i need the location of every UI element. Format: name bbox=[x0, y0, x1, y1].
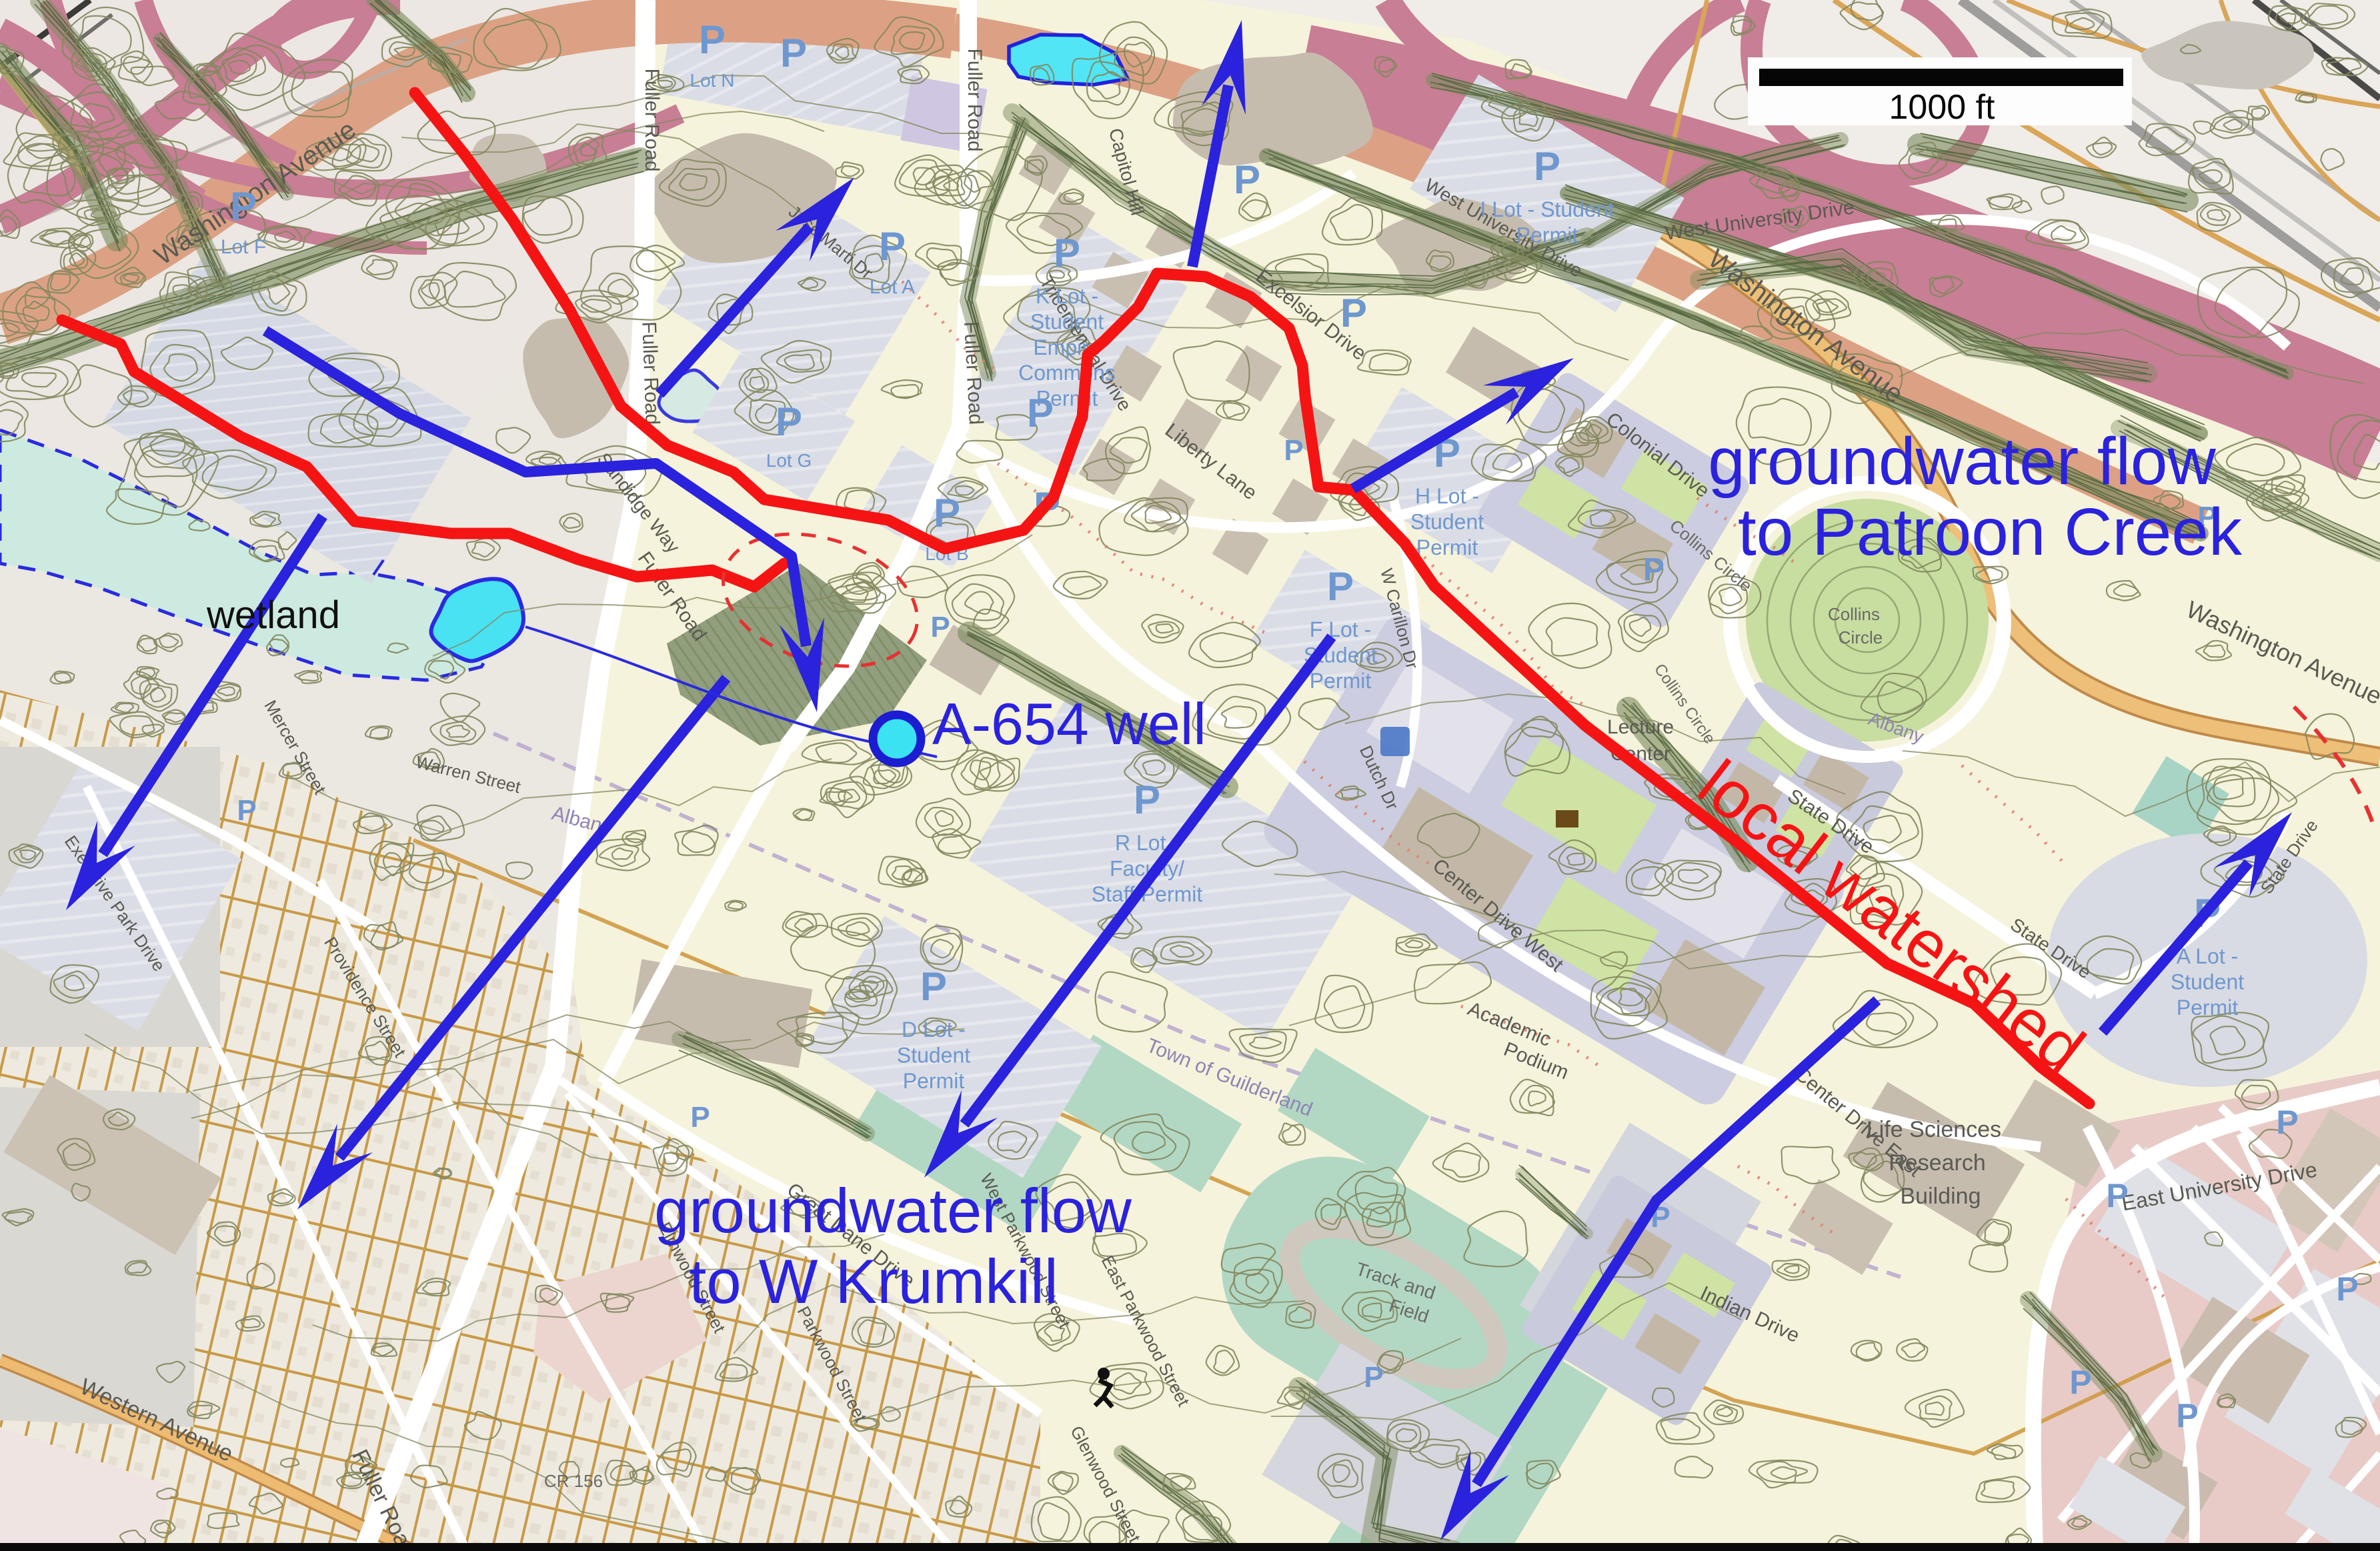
svg-text:P: P bbox=[780, 31, 807, 75]
svg-text:CR 156: CR 156 bbox=[544, 1471, 603, 1491]
svg-text:Student: Student bbox=[1030, 309, 1104, 333]
svg-text:Research: Research bbox=[1889, 1150, 1986, 1176]
svg-text:P: P bbox=[1643, 552, 1664, 587]
svg-text:1000 ft: 1000 ft bbox=[1889, 88, 1995, 127]
svg-text:Collins: Collins bbox=[1828, 604, 1880, 624]
svg-text:Fuller Road: Fuller Road bbox=[964, 48, 986, 151]
svg-text:Lecture: Lecture bbox=[1607, 716, 1674, 738]
svg-text:to W Krumkill: to W Krumkill bbox=[689, 1246, 1058, 1316]
svg-text:A-654 well: A-654 well bbox=[932, 691, 1206, 757]
svg-text:P: P bbox=[1327, 564, 1354, 609]
svg-text:P: P bbox=[2069, 1364, 2091, 1401]
svg-text:Fuller Road: Fuller Road bbox=[638, 321, 663, 425]
svg-text:to Patroon Creek: to Patroon Creek bbox=[1738, 495, 2243, 569]
svg-text:Lot A: Lot A bbox=[870, 276, 915, 298]
svg-text:Permit: Permit bbox=[2177, 996, 2239, 1020]
svg-text:P: P bbox=[1234, 157, 1260, 202]
svg-text:Permit: Permit bbox=[1310, 669, 1372, 693]
svg-text:P: P bbox=[1027, 391, 1054, 435]
svg-text:Lot G: Lot G bbox=[766, 450, 812, 471]
svg-text:Lot N: Lot N bbox=[690, 70, 735, 91]
svg-text:P: P bbox=[776, 399, 802, 444]
svg-text:P: P bbox=[1364, 1361, 1383, 1394]
svg-text:Lot F: Lot F bbox=[221, 236, 266, 258]
svg-text:P: P bbox=[1284, 434, 1303, 467]
svg-text:P: P bbox=[237, 794, 256, 827]
svg-text:P: P bbox=[1534, 144, 1560, 189]
svg-text:P: P bbox=[930, 611, 950, 643]
svg-text:F Lot -: F Lot - bbox=[1310, 617, 1371, 641]
svg-text:P: P bbox=[1340, 291, 1367, 335]
svg-text:groundwater flow: groundwater flow bbox=[1708, 424, 2216, 499]
svg-text:I Lot - Student: I Lot - Student bbox=[1480, 197, 1614, 221]
svg-text:P: P bbox=[230, 184, 257, 229]
svg-text:Permit: Permit bbox=[903, 1069, 965, 1093]
svg-text:Building: Building bbox=[1901, 1184, 1981, 1209]
svg-text:Permit: Permit bbox=[1516, 223, 1578, 247]
svg-text:wetland: wetland bbox=[206, 593, 340, 637]
svg-text:P: P bbox=[699, 17, 726, 62]
svg-text:H Lot -: H Lot - bbox=[1415, 484, 1479, 508]
svg-text:Student: Student bbox=[2171, 970, 2244, 994]
svg-text:Commons: Commons bbox=[1018, 361, 1116, 385]
svg-text:P: P bbox=[2106, 1177, 2128, 1214]
svg-text:P: P bbox=[920, 964, 947, 1009]
svg-text:P: P bbox=[2276, 1104, 2298, 1141]
svg-text:Student: Student bbox=[897, 1043, 970, 1067]
svg-text:A Lot -: A Lot - bbox=[2177, 944, 2239, 968]
svg-text:Fuller Road: Fuller Road bbox=[641, 68, 663, 171]
svg-text:P: P bbox=[1134, 778, 1160, 822]
svg-text:Student: Student bbox=[1410, 509, 1484, 533]
svg-text:groundwater flow: groundwater flow bbox=[654, 1176, 1132, 1246]
svg-text:P: P bbox=[1054, 231, 1080, 275]
svg-text:P: P bbox=[2176, 1397, 2198, 1434]
svg-text:Life Sciences: Life Sciences bbox=[1867, 1117, 2001, 1142]
svg-text:K Lot -: K Lot - bbox=[1036, 284, 1098, 308]
svg-text:P: P bbox=[690, 1101, 710, 1134]
svg-text:P: P bbox=[2336, 1270, 2358, 1308]
svg-text:Permit: Permit bbox=[1416, 535, 1478, 559]
svg-text:Circle: Circle bbox=[1839, 627, 1883, 647]
svg-text:P: P bbox=[934, 491, 960, 535]
svg-text:D Lot -: D Lot - bbox=[902, 1018, 966, 1042]
svg-text:P: P bbox=[879, 224, 906, 269]
